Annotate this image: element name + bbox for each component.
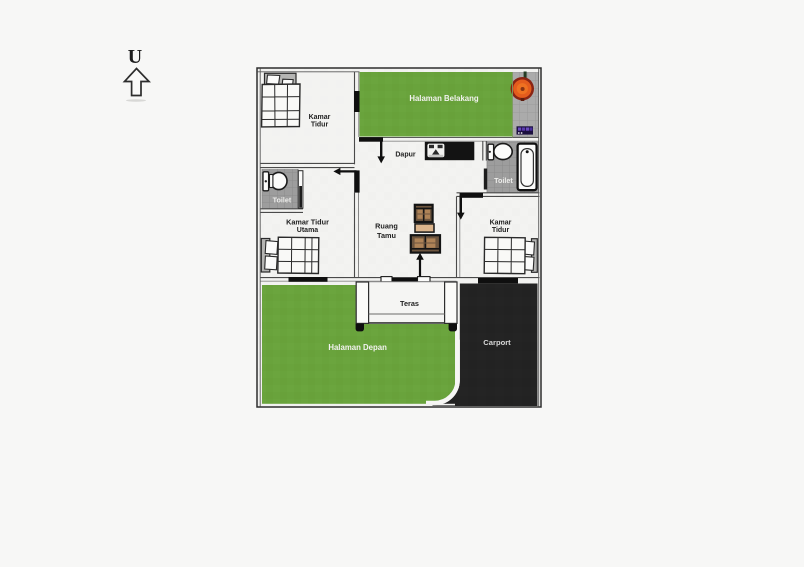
- svg-text:Toilet: Toilet: [273, 195, 292, 204]
- svg-text:Carport: Carport: [483, 338, 511, 347]
- svg-text:Toilet: Toilet: [494, 176, 513, 185]
- svg-text:Tidur: Tidur: [492, 227, 510, 234]
- svg-text:Halaman Depan: Halaman Depan: [328, 343, 387, 352]
- svg-text:Kamar: Kamar: [309, 114, 331, 121]
- svg-text:Ruang: Ruang: [375, 222, 398, 231]
- svg-text:Teras: Teras: [400, 299, 419, 308]
- svg-text:Kamar: Kamar: [490, 219, 512, 226]
- svg-text:Tidur: Tidur: [311, 122, 329, 129]
- svg-text:Tamu: Tamu: [377, 231, 396, 240]
- svg-text:Halaman Belakang: Halaman Belakang: [409, 94, 479, 103]
- svg-text:Kamar Tidur: Kamar Tidur: [286, 217, 329, 226]
- svg-text:Utama: Utama: [297, 227, 319, 234]
- svg-text:Dapur: Dapur: [395, 151, 416, 158]
- svg-text:U: U: [128, 46, 142, 68]
